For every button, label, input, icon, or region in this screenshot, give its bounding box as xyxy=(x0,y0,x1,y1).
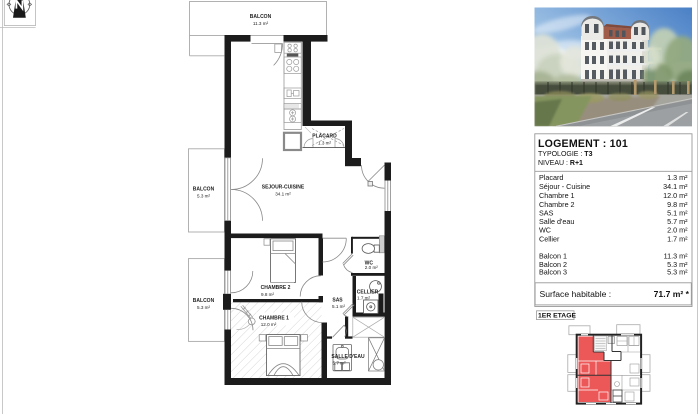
svg-text:Cellier: Cellier xyxy=(539,234,560,243)
svg-text:BALCON: BALCON xyxy=(250,14,272,20)
svg-text:2.0 m²: 2.0 m² xyxy=(365,265,378,270)
svg-text:2.0 m²: 2.0 m² xyxy=(667,226,688,235)
svg-text:CHAMBRE 1: CHAMBRE 1 xyxy=(259,315,289,321)
svg-text:NIVEAU : R+1: NIVEAU : R+1 xyxy=(538,160,583,167)
svg-text:BALCON: BALCON xyxy=(193,298,215,304)
svg-text:PLACARD: PLACARD xyxy=(312,134,337,140)
svg-text:12.0 m²: 12.0 m² xyxy=(663,191,688,200)
svg-text:1.3 m²: 1.3 m² xyxy=(667,173,688,182)
svg-text:BALCON: BALCON xyxy=(193,187,215,193)
svg-text:Séjour - Cuisine: Séjour - Cuisine xyxy=(539,182,590,191)
svg-text:34.1 m²: 34.1 m² xyxy=(663,182,688,191)
svg-text:5.3 m²: 5.3 m² xyxy=(667,267,688,276)
svg-text:SAS: SAS xyxy=(332,298,343,304)
svg-text:Balcon 3: Balcon 3 xyxy=(539,267,567,276)
svg-text:1.7 m²: 1.7 m² xyxy=(667,234,688,243)
svg-text:Chambre 1: Chambre 1 xyxy=(539,191,575,200)
svg-text:1ER ETAGE: 1ER ETAGE xyxy=(538,313,576,320)
svg-text:TYPOLOGIE : T3: TYPOLOGIE : T3 xyxy=(538,151,593,158)
svg-text:Surface habitable :: Surface habitable : xyxy=(540,289,612,299)
svg-text:1.3 m²: 1.3 m² xyxy=(318,141,331,146)
svg-text:5.3 m²: 5.3 m² xyxy=(197,305,210,310)
svg-text:5.3 m²: 5.3 m² xyxy=(197,194,210,199)
svg-text:9.8 m²: 9.8 m² xyxy=(261,292,274,297)
svg-text:Placard: Placard xyxy=(539,173,563,182)
svg-text:WC: WC xyxy=(539,226,551,235)
svg-text:5.1 m²: 5.1 m² xyxy=(332,304,345,309)
svg-text:LOGEMENT : 101: LOGEMENT : 101 xyxy=(538,138,628,150)
svg-text:11.3 m²: 11.3 m² xyxy=(253,21,269,26)
svg-text:71.7 m² *: 71.7 m² * xyxy=(654,289,690,299)
svg-text:SALLE D'EAU: SALLE D'EAU xyxy=(331,354,365,360)
svg-text:SEJOUR-CUISINE: SEJOUR-CUISINE xyxy=(262,185,305,191)
svg-text:34.1 m²: 34.1 m² xyxy=(275,192,291,197)
svg-text:CHAMBRE 2: CHAMBRE 2 xyxy=(261,285,291,291)
svg-text:1.7 m²: 1.7 m² xyxy=(357,295,370,300)
svg-text:12.0 m²: 12.0 m² xyxy=(261,322,277,327)
svg-text:5.7 m²: 5.7 m² xyxy=(332,360,345,365)
